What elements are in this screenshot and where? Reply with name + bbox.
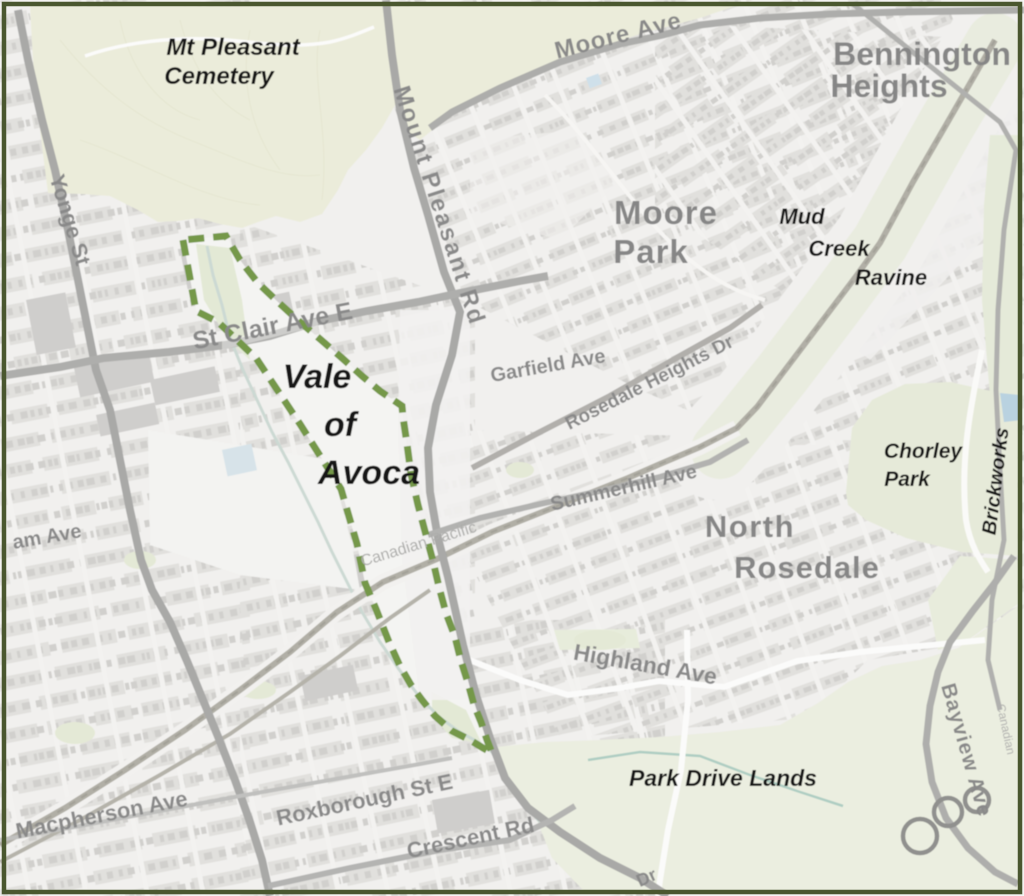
svg-text:Bennington: Bennington bbox=[833, 36, 1011, 72]
svg-text:Creek: Creek bbox=[808, 236, 871, 261]
svg-text:Avoca: Avoca bbox=[317, 454, 420, 492]
svg-text:Park: Park bbox=[884, 468, 931, 491]
svg-text:Mud: Mud bbox=[779, 204, 825, 229]
svg-text:Chorley: Chorley bbox=[884, 440, 964, 463]
svg-text:Heights: Heights bbox=[830, 68, 947, 104]
svg-text:Park Drive Lands: Park Drive Lands bbox=[629, 765, 817, 791]
svg-text:Mt Pleasant: Mt Pleasant bbox=[166, 34, 300, 61]
svg-text:Park: Park bbox=[613, 233, 689, 270]
svg-text:Rosedale: Rosedale bbox=[734, 550, 880, 585]
svg-text:Moore: Moore bbox=[614, 194, 718, 231]
svg-text:Ravine: Ravine bbox=[855, 265, 927, 290]
svg-text:Cemetery: Cemetery bbox=[164, 63, 275, 90]
svg-text:North: North bbox=[705, 509, 795, 544]
svg-text:Vale: Vale bbox=[283, 358, 352, 396]
svg-text:of: of bbox=[324, 406, 360, 444]
